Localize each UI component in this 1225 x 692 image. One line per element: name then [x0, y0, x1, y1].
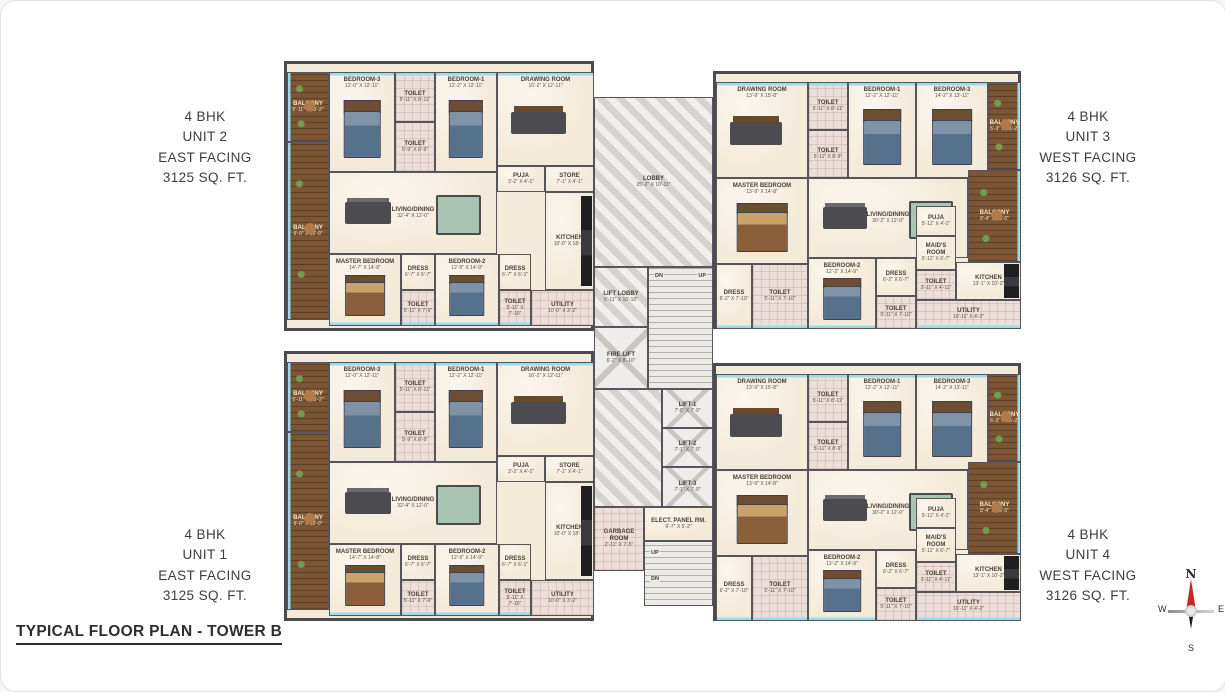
room-dims-label: 3'-11" X 4'-11": [921, 286, 952, 292]
unit-2-label: 4 BHK UNIT 2 EAST FACING 3125 SQ. FT.: [127, 107, 283, 188]
room-maids-room: MAID'S ROOM5'-11" X 6'-7": [916, 236, 956, 270]
room-dims-label: 5'-11" X 8'-11": [813, 399, 844, 405]
compass: N W E S: [1158, 567, 1224, 653]
room-puja: PUJA3'-2" X 4'-1": [497, 166, 545, 192]
room-name-label: BALCONY: [293, 515, 323, 522]
room-dims-label: 5'-11" X 8'-9": [814, 155, 842, 161]
room-toilet: TOILET5'-11" X 8'-11": [395, 72, 435, 122]
room-dims-label: 6'-7" X 6'-1": [502, 273, 528, 279]
room-dims-label: 8'-4" X 13'-0": [980, 217, 1009, 223]
unit-4-plan: DRAWING ROOM13'-9" X 15'-8" TOILET5'-11"…: [713, 363, 1021, 621]
room-living-dining: LIVING/DINING32'-4" X 12'-0": [329, 172, 497, 254]
room-toilet: TOILET5'-11" X 7'-10": [752, 556, 808, 621]
room-dims-label: 5'-11" X 8'-9": [814, 447, 842, 453]
room-dims-label: 5'-11" X 7'-10": [764, 297, 795, 303]
room-dims-label: 12'-2" X 12'-11": [865, 386, 899, 392]
room-dims-label: 12'-2" X 14'-9": [826, 270, 858, 276]
floor-plan-page: 4 BHK UNIT 2 EAST FACING 3125 SQ. FT. 4 …: [0, 0, 1225, 692]
stair-dn-label: DN: [654, 273, 664, 279]
unit-3-number: UNIT 3: [1013, 127, 1163, 147]
room-master-bedroom: MASTER BEDROOM13'-9" X 14'-8": [716, 470, 808, 556]
room-dims-label: 5'-3" X 15'-2": [990, 419, 1019, 425]
room-balcony: BALCONY6'-0" X 12'-0": [287, 142, 329, 320]
room-toilet: TOILET5'-11" X 7'-10": [499, 580, 531, 616]
room-dims-label: 13'-1" X 10'-2": [973, 282, 1005, 288]
unit-4-number: UNIT 4: [1013, 545, 1163, 565]
room-bedroom-1: BEDROOM-112'-2" X 12'-11": [435, 72, 497, 172]
core-staircase-upper: DN UP: [648, 267, 713, 389]
room-kitchen: KITCHEN10'-0" X 18'-2": [545, 192, 594, 290]
room-dress: DRESS6'-7" X 6'-1": [499, 544, 531, 580]
room-utility: UTILITY10'-0" X 3'-2": [531, 580, 594, 616]
room-bedroom-3: BEDROOM-312'-0" X 12'-11": [329, 362, 395, 462]
room-dress: DRESS6'-7" X 6'-7": [401, 544, 435, 580]
room-dims-label: 10'-0" X 18'-2": [554, 532, 586, 538]
room-bedroom-2: BEDROOM-212'-9" X 14'-9": [435, 544, 499, 616]
room-dims-label: 5'-11" X 7'-10": [764, 589, 795, 595]
unit-1-plan: BALCONY5'-11" X 15'-2" BALCONY6'-0" X 12…: [284, 351, 594, 621]
core-corridor: [594, 389, 662, 507]
room-toilet: TOILET5'-11" X 8'-11": [808, 374, 848, 422]
compass-south-label: S: [1188, 643, 1194, 653]
room-toilet: TOILET5'-11" X 8'-9": [808, 422, 848, 470]
unit-1-number: UNIT 1: [127, 545, 283, 565]
room-toilet: TOILET5'-9" X 8'-9": [395, 122, 435, 172]
room-dims-label: 10'-0" X 3'-2": [548, 309, 577, 315]
unit-3-plan: DRAWING ROOM13'-9" X 15'-8" TOILET5'-11"…: [713, 71, 1021, 329]
room-dims-label: 5'-11" X 8'-11": [400, 98, 431, 104]
core-electrical-panel-room: ELECT. PANEL RM.6'-7" X 5'-2": [644, 507, 713, 541]
room-dims-label: 14'-2" X 13'-11": [935, 94, 969, 100]
room-dims-label: 8'-4" X 13'-0": [980, 509, 1009, 515]
room-dims-label: 12'-2" X 14'-9": [826, 562, 858, 568]
room-name-label: BALCONY: [293, 225, 323, 232]
room-living-dining: LIVING/DINING32'-4" X 12'-0": [329, 462, 497, 544]
room-balcony: BALCONY8'-4" X 13'-0": [968, 170, 1021, 262]
room-dims-label: 3'-2" X 4'-1": [508, 470, 534, 476]
room-dims-label: 5'-11" X 7'-9": [404, 599, 432, 605]
room-dims-label: 5'-11" X 7'-9": [404, 309, 432, 315]
room-dress: DRESS6'-2" X 6'-7": [876, 258, 916, 296]
room-toilet: TOILET5'-11" X 8'-9": [808, 130, 848, 178]
room-drawing-room: DRAWING ROOM13'-9" X 15'-8": [716, 374, 808, 470]
room-toilet: TOILET5'-11" X 8'-11": [395, 362, 435, 412]
room-bedroom-1: BEDROOM-112'-2" X 12'-11": [435, 362, 497, 462]
room-drawing-room: DRAWING ROOM13'-9" X 15'-8": [716, 82, 808, 178]
room-dims-label: 12'-9" X 14'-9": [451, 266, 483, 272]
stair-up-label: UP: [650, 550, 660, 556]
room-dims-label: 16'-2" X 12'-11": [529, 374, 563, 380]
room-toilet: TOILET5'-11" X 7'-10": [752, 264, 808, 329]
room-store: STORE7'-1" X 4'-1": [545, 456, 594, 482]
room-dims-label: 12'-2" X 12'-11": [865, 94, 899, 100]
room-bedroom-1: BEDROOM-112'-2" X 12'-11": [848, 374, 916, 470]
room-master-bedroom: MASTER BEDROOM14'-7" X 14'-8": [329, 254, 401, 326]
room-dims-label: 14'-7" X 14'-8": [349, 556, 381, 562]
room-drawing-room: DRAWING ROOM16'-2" X 12'-11": [497, 362, 594, 456]
room-name-label: BALCONY: [990, 120, 1020, 127]
room-name-label: MAID'S ROOM: [918, 535, 954, 549]
room-name-label: BALCONY: [990, 412, 1020, 419]
room-dims-label: 12'-0" X 12'-11": [345, 84, 379, 90]
room-dims-label: 10'-0" X 18'-2": [554, 242, 586, 248]
room-dims-label: 5'-11" X 4'-1": [922, 514, 950, 520]
room-dims-label: 14'-2" X 13'-11": [935, 386, 969, 392]
room-name-label: MAID'S ROOM: [918, 243, 954, 257]
room-bedroom-3: BEDROOM-312'-0" X 12'-11": [329, 72, 395, 172]
room-toilet: TOILET5'-11" X 7'-9": [401, 290, 435, 326]
room-dress: DRESS6'-7" X 6'-1": [499, 254, 531, 290]
room-bedroom-1: BEDROOM-112'-2" X 12'-11": [848, 82, 916, 178]
room-dims-label: 12'-2" X 12'-11": [449, 374, 483, 380]
room-dims-label: 6'-7" X 6'-1": [502, 563, 528, 569]
unit-2-facing: EAST FACING: [127, 148, 283, 168]
core-garbage-room: GARBAGE ROOM2'-11" X 7'-5": [594, 507, 644, 571]
room-dims-label: 6'-2" X 8'-10": [607, 359, 636, 365]
room-balcony: BALCONY6'-0" X 12'-0": [287, 432, 329, 610]
room-dims-label: 32'-4" X 12'-0": [397, 214, 429, 220]
room-master-bedroom: MASTER BEDROOM14'-7" X 14'-8": [329, 544, 401, 616]
room-dims-label: 5'-11" X 6'-7": [922, 549, 950, 555]
room-dims-label: 30'-2" X 12'-0": [872, 219, 904, 225]
room-dims-label: 6'-11" X 10'-10": [604, 298, 638, 304]
room-dims-label: 6'-7" X 6'-7": [405, 273, 431, 279]
room-dress: DRESS6'-2" X 6'-7": [876, 550, 916, 588]
room-dims-label: 6'-7" X 6'-7": [405, 563, 431, 569]
room-dims-label: 5'-11" X 7'-10": [880, 313, 911, 319]
room-toilet: TOILET5'-11" X 7'-10": [876, 588, 916, 621]
room-dims-label: 5'-9" X 8'-9": [402, 148, 428, 154]
room-puja: PUJA3'-2" X 4'-1": [497, 456, 545, 482]
room-dims-label: 10'-11" X 4'-2": [953, 607, 984, 613]
room-dims-label: 5'-11" X 15'-2": [292, 108, 323, 114]
core-plan: LOBBY25'-2" X 10'-11" LIFT LOBBY6'-11" X…: [594, 89, 713, 606]
room-bedroom-3: BEDROOM-314'-2" X 13'-11": [916, 82, 988, 178]
room-dims-label: 10'-11" X 4'-2": [953, 315, 984, 321]
room-dims-label: 5'-11" X 15'-2": [292, 398, 323, 404]
room-master-bedroom: MASTER BEDROOM13'-9" X 14'-8": [716, 178, 808, 264]
room-drawing-room: DRAWING ROOM16'-2" X 12'-11": [497, 72, 594, 166]
room-toilet: TOILET3'-11" X 4'-11": [916, 270, 956, 300]
floor-plan: BALCONY5'-11" X 15'-2" BALCONY6'-0" X 12…: [284, 61, 1021, 621]
room-utility: UTILITY10'-11" X 4'-2": [916, 592, 1021, 621]
room-dims-label: 5'-11" X 8'-11": [813, 107, 844, 113]
core-lift-lobby: LIFT LOBBY6'-11" X 10'-10": [594, 267, 648, 327]
room-dims-label: 5'-3" X 15'-2": [990, 127, 1019, 133]
room-dims-label: 7'-1" X 4'-1": [556, 470, 582, 476]
room-dress: DRESS6'-7" X 6'-7": [401, 254, 435, 290]
room-toilet: TOILET5'-11" X 8'-11": [808, 82, 848, 130]
stair-dn-label: DN: [650, 576, 660, 582]
room-dress: DRESS6'-2" X 7'-10": [716, 556, 752, 621]
core-lift-1: LIFT-17'-8" X 7'-0": [662, 389, 713, 428]
compass-east-label: E: [1218, 604, 1224, 614]
unit-2-number: UNIT 2: [127, 127, 283, 147]
room-dims-label: 6'-2" X 7'-10": [720, 589, 749, 595]
unit-3-bhk: 4 BHK: [1013, 107, 1163, 127]
room-dims-label: 6'-0" X 12'-0": [294, 522, 323, 528]
room-dims-label: 12'-9" X 14'-9": [451, 556, 483, 562]
room-dims-label: 32'-4" X 12'-0": [397, 504, 429, 510]
room-dims-label: 3'-11" X 4'-11": [921, 578, 952, 584]
unit-2-area: 3125 SQ. FT.: [127, 168, 283, 188]
room-dress: DRESS6'-2" X 7'-10": [716, 264, 752, 329]
core-staircase-lower: UP DN: [644, 541, 713, 606]
room-dims-label: 6'-2" X 7'-10": [720, 297, 749, 303]
room-name-label: GARBAGE ROOM: [596, 529, 642, 543]
core-lobby: LOBBY25'-2" X 10'-11": [594, 97, 713, 267]
unit-1-facing: EAST FACING: [127, 566, 283, 586]
room-dims-label: 12'-0" X 12'-11": [345, 374, 379, 380]
room-bedroom-2: BEDROOM-212'-2" X 14'-9": [808, 550, 876, 621]
room-name-label: BALCONY: [293, 391, 323, 398]
room-puja: PUJA5'-11" X 4'-1": [916, 206, 956, 236]
unit-4-area: 3126 SQ. FT.: [1013, 586, 1163, 606]
unit-1-area: 3125 SQ. FT.: [127, 586, 283, 606]
room-bedroom-2: BEDROOM-212'-2" X 14'-9": [808, 258, 876, 329]
room-kitchen: KITCHEN13'-1" X 10'-2": [956, 554, 1021, 592]
room-utility: UTILITY10'-0" X 3'-2": [531, 290, 594, 326]
room-dims-label: 5'-11" X 7'-10": [880, 605, 911, 611]
room-dims-label: 5'-11" X 8'-11": [400, 388, 431, 394]
core-fire-lift: FIRE LIFT6'-2" X 8'-10": [594, 327, 648, 389]
unit-1-bhk: 4 BHK: [127, 525, 283, 545]
room-dims-label: 30'-2" X 12'-0": [872, 511, 904, 517]
room-dims-label: 3'-2" X 4'-1": [508, 180, 534, 186]
room-utility: UTILITY10'-11" X 4'-2": [916, 300, 1021, 329]
core-lift-3: LIFT-37'-1" X 7'-0": [662, 467, 713, 507]
stair-up-label: UP: [697, 273, 707, 279]
room-dims-label: 16'-2" X 12'-11": [529, 84, 563, 90]
room-dims-label: 25'-2" X 10'-11": [637, 183, 671, 189]
room-toilet: TOILET5'-9" X 8'-9": [395, 412, 435, 462]
unit-2-plan: BALCONY5'-11" X 15'-2" BALCONY6'-0" X 12…: [284, 61, 594, 331]
core-lift-2: LIFT-27'-1" X 7'-0": [662, 428, 713, 467]
unit-3-area: 3126 SQ. FT.: [1013, 168, 1163, 188]
unit-4-label: 4 BHK UNIT 4 WEST FACING 3126 SQ. FT.: [1013, 525, 1163, 606]
room-store: STORE7'-1" X 4'-1": [545, 166, 594, 192]
room-puja: PUJA5'-11" X 4'-1": [916, 498, 956, 528]
room-toilet: TOILET5'-11" X 7'-10": [876, 296, 916, 329]
room-kitchen: KITCHEN10'-0" X 18'-2": [545, 482, 594, 580]
room-balcony: BALCONY5'-11" X 15'-2": [287, 72, 329, 142]
room-dims-label: 13'-9" X 15'-8": [746, 94, 778, 100]
room-dims-label: 5'-11" X 7'-10": [501, 596, 529, 608]
room-dims-label: 2'-11" X 7'-5": [605, 543, 633, 549]
compass-west-label: W: [1158, 604, 1167, 614]
room-dims-label: 13'-9" X 14'-8": [746, 190, 778, 196]
room-dims-label: 13'-9" X 15'-8": [746, 386, 778, 392]
room-maids-room: MAID'S ROOM5'-11" X 6'-7": [916, 528, 956, 562]
room-dims-label: 6'-2" X 6'-7": [883, 570, 909, 576]
unit-3-label: 4 BHK UNIT 3 WEST FACING 3126 SQ. FT.: [1013, 107, 1163, 188]
room-balcony: BALCONY5'-3" X 15'-2": [988, 374, 1021, 462]
room-bedroom-3: BEDROOM-314'-2" X 13'-11": [916, 374, 988, 470]
unit-2-bhk: 4 BHK: [127, 107, 283, 127]
room-name-label: BALCONY: [980, 210, 1010, 217]
room-dims-label: 12'-2" X 12'-11": [449, 84, 483, 90]
page-title: TYPICAL FLOOR PLAN - TOWER B: [16, 623, 282, 645]
room-dims-label: 14'-7" X 14'-8": [349, 266, 381, 272]
room-dims-label: 6'-2" X 6'-7": [883, 278, 909, 284]
unit-1-label: 4 BHK UNIT 1 EAST FACING 3125 SQ. FT.: [127, 525, 283, 606]
room-name-label: BALCONY: [293, 101, 323, 108]
room-toilet: TOILET5'-11" X 7'-9": [401, 580, 435, 616]
room-toilet: TOILET3'-11" X 4'-11": [916, 562, 956, 592]
room-dims-label: 7'-1" X 7'-0": [674, 488, 700, 494]
compass-hub-icon: [1185, 605, 1197, 617]
room-dims-label: 13'-1" X 10'-2": [973, 574, 1005, 580]
room-dims-label: 6'-0" X 12'-0": [294, 232, 323, 238]
room-balcony: BALCONY5'-3" X 15'-2": [988, 82, 1021, 170]
room-dims-label: 5'-11" X 4'-1": [922, 222, 950, 228]
room-dims-label: 10'-0" X 3'-2": [548, 599, 577, 605]
unit-4-facing: WEST FACING: [1013, 566, 1163, 586]
room-name-label: BALCONY: [980, 502, 1010, 509]
room-dims-label: 7'-1" X 4'-1": [556, 180, 582, 186]
room-toilet: TOILET5'-11" X 7'-10": [499, 290, 531, 326]
room-dims-label: 5'-11" X 6'-7": [922, 257, 950, 263]
room-dims-label: 7'-8" X 7'-0": [674, 409, 700, 415]
room-bedroom-2: BEDROOM-212'-9" X 14'-9": [435, 254, 499, 326]
room-dims-label: 6'-7" X 5'-2": [665, 525, 691, 531]
room-kitchen: KITCHEN13'-1" X 10'-2": [956, 262, 1021, 300]
room-dims-label: 13'-9" X 14'-8": [746, 482, 778, 488]
room-dims-label: 5'-11" X 7'-10": [501, 306, 529, 318]
room-dims-label: 7'-1" X 7'-0": [674, 448, 700, 454]
room-balcony: BALCONY5'-11" X 15'-2": [287, 362, 329, 432]
unit-4-bhk: 4 BHK: [1013, 525, 1163, 545]
room-balcony: BALCONY8'-4" X 13'-0": [968, 462, 1021, 554]
unit-3-facing: WEST FACING: [1013, 148, 1163, 168]
room-dims-label: 5'-9" X 8'-9": [402, 438, 428, 444]
